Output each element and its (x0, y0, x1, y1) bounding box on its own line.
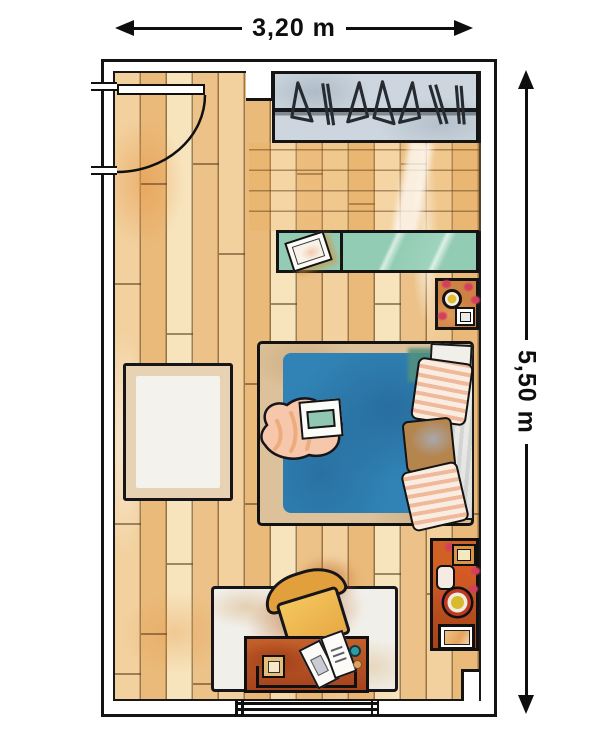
arrow-down-icon (518, 695, 534, 714)
dresser-box (452, 544, 476, 566)
hangers-icon (275, 74, 476, 140)
nightstand (435, 278, 479, 330)
flower-icon (439, 595, 448, 603)
small-dot (353, 660, 362, 669)
flower-icon (464, 283, 473, 291)
dimension-line (134, 27, 242, 30)
teal-dot (349, 645, 361, 657)
tray-contents (306, 409, 335, 429)
door-jamb-bottom (91, 166, 117, 175)
flower-icon (442, 280, 451, 288)
width-dimension-label: 3,20 m (252, 14, 336, 43)
dresser-tray (438, 624, 475, 650)
arrow-right-icon (454, 20, 473, 36)
arrow-up-icon (518, 70, 534, 89)
height-dimension-label: 5,50 m (512, 350, 541, 434)
flower-icon (471, 567, 480, 575)
window (235, 700, 379, 716)
dresser (430, 538, 479, 651)
shelf-divider (340, 233, 343, 270)
nightstand-box (455, 307, 475, 326)
dresser-tray-small (436, 565, 455, 590)
floor-plan-canvas: 3,20 m 5,50 m (0, 0, 600, 750)
dresser-lamp-icon (451, 596, 464, 609)
dimension-line (346, 27, 454, 30)
wall-jog-bottom-right (461, 669, 479, 701)
height-dimension: 5,50 m (511, 70, 541, 714)
door-swing-arc (115, 94, 207, 180)
dimension-line (525, 444, 528, 695)
arrow-left-icon (115, 20, 134, 36)
pillow-striped-top (410, 356, 474, 426)
width-dimension: 3,20 m (115, 13, 473, 43)
table-box (262, 655, 285, 678)
wardrobe (272, 71, 479, 143)
lamp-icon (442, 289, 462, 309)
rug-left (123, 363, 233, 501)
flower-icon (471, 296, 480, 304)
bed-tray (298, 398, 343, 440)
door-jamb-top (91, 82, 117, 91)
flower-icon (438, 312, 447, 320)
flower-icon (469, 585, 478, 593)
wall-jog-top (246, 71, 274, 101)
dimension-line (525, 89, 528, 340)
